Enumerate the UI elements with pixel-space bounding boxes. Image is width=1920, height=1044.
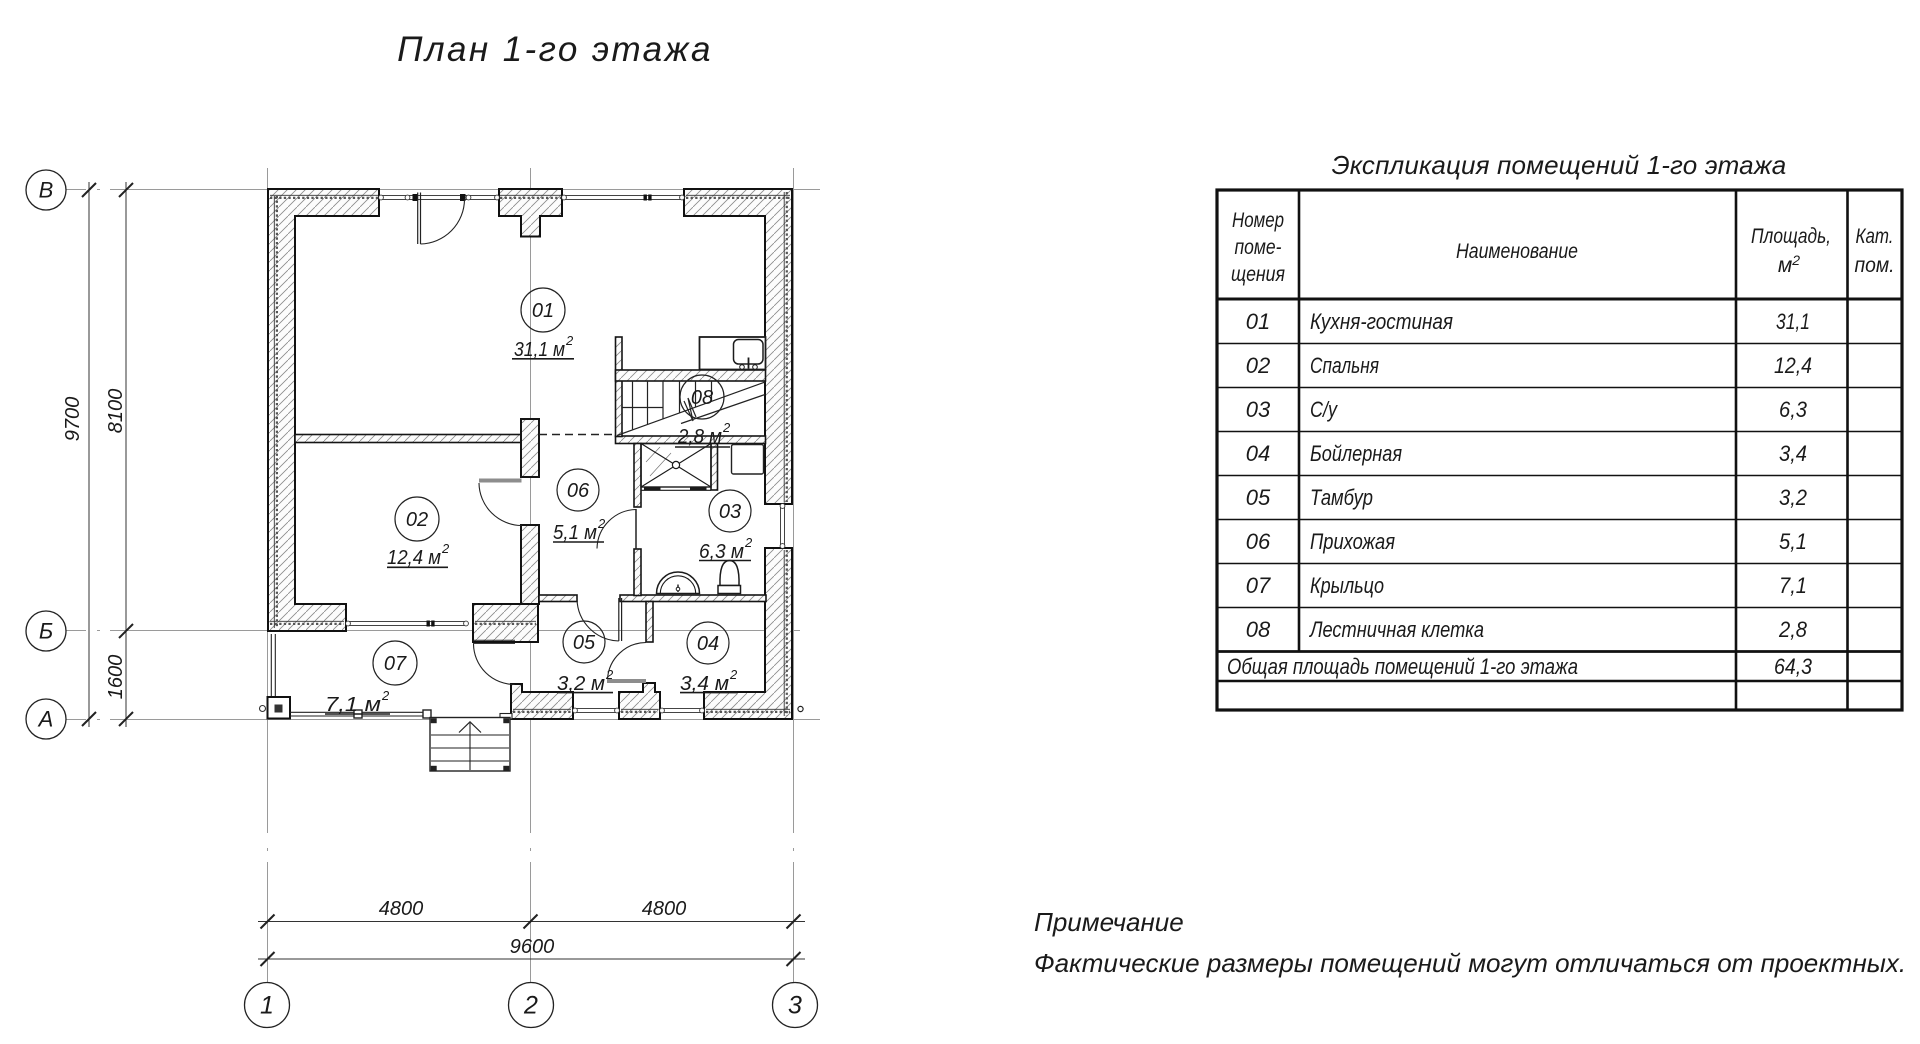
svg-text:2,8 м: 2,8 м <box>677 426 722 448</box>
svg-text:Номер: Номер <box>1232 209 1284 232</box>
svg-text:8100: 8100 <box>105 389 127 434</box>
svg-text:Площадь,: Площадь, <box>1751 225 1831 248</box>
svg-text:Примечание: Примечание <box>1034 907 1184 937</box>
svg-text:Спальня: Спальня <box>1310 353 1379 378</box>
svg-text:64,3: 64,3 <box>1774 654 1813 679</box>
svg-text:2: 2 <box>523 992 538 1020</box>
svg-text:07: 07 <box>384 653 407 675</box>
svg-text:2: 2 <box>605 667 614 682</box>
svg-text:План 1-го этажа: План 1-го этажа <box>397 30 713 69</box>
svg-text:5,1 м: 5,1 м <box>553 522 597 544</box>
svg-text:1600: 1600 <box>105 655 127 700</box>
svg-text:7,1 м: 7,1 м <box>325 694 381 716</box>
svg-text:поме-: поме- <box>1235 236 1282 259</box>
svg-text:06: 06 <box>567 480 590 502</box>
svg-text:5,1: 5,1 <box>1779 529 1807 554</box>
svg-text:2: 2 <box>565 333 574 348</box>
svg-text:Кухня-гостиная: Кухня-гостиная <box>1310 309 1453 334</box>
svg-text:12,4 м: 12,4 м <box>387 547 441 569</box>
svg-text:03: 03 <box>1246 397 1271 422</box>
svg-text:08: 08 <box>691 387 713 409</box>
svg-text:12,4: 12,4 <box>1774 353 1812 378</box>
svg-text:4800: 4800 <box>642 898 687 920</box>
svg-text:Лестничная клетка: Лестничная клетка <box>1308 617 1484 642</box>
svg-text:01: 01 <box>1246 309 1270 334</box>
svg-text:Прихожая: Прихожая <box>1310 529 1395 554</box>
svg-text:06: 06 <box>1246 529 1271 554</box>
svg-text:м2: м2 <box>1778 252 1800 277</box>
svg-text:щения: щения <box>1231 263 1285 286</box>
svg-text:Б: Б <box>39 619 53 644</box>
svg-text:31,1: 31,1 <box>1776 309 1810 334</box>
svg-text:Наименование: Наименование <box>1456 240 1578 263</box>
svg-text:2,8: 2,8 <box>1778 617 1808 642</box>
svg-text:9600: 9600 <box>510 936 555 958</box>
svg-text:02: 02 <box>406 509 428 531</box>
svg-text:04: 04 <box>697 633 719 655</box>
svg-text:2: 2 <box>729 667 738 682</box>
svg-text:01: 01 <box>532 300 554 322</box>
svg-text:3,2 м: 3,2 м <box>557 673 605 695</box>
svg-text:Экспликация помещений 1-го эта: Экспликация помещений 1-го этажа <box>1332 150 1787 180</box>
svg-text:4800: 4800 <box>379 898 424 920</box>
svg-text:В: В <box>39 178 54 203</box>
svg-text:3,2: 3,2 <box>1779 485 1807 510</box>
svg-text:07: 07 <box>1246 573 1271 598</box>
svg-text:05: 05 <box>1246 485 1271 510</box>
svg-text:Общая площадь помещений 1-го э: Общая площадь помещений 1-го этажа <box>1227 654 1578 679</box>
svg-text:Кат.: Кат. <box>1856 225 1894 248</box>
svg-text:31,1 м: 31,1 м <box>514 339 565 361</box>
svg-text:пом.: пом. <box>1855 254 1895 277</box>
svg-text:04: 04 <box>1246 441 1270 466</box>
svg-text:Крыльцо: Крыльцо <box>1310 573 1384 598</box>
svg-text:3,4: 3,4 <box>1779 441 1807 466</box>
svg-text:3: 3 <box>788 992 802 1020</box>
svg-text:02: 02 <box>1246 353 1270 378</box>
svg-text:08: 08 <box>1246 617 1271 642</box>
svg-text:С/у: С/у <box>1310 397 1339 422</box>
svg-text:9700: 9700 <box>62 397 84 442</box>
svg-text:А: А <box>37 707 54 732</box>
svg-text:3,4 м: 3,4 м <box>680 673 729 695</box>
svg-text:7,1: 7,1 <box>1779 573 1807 598</box>
svg-text:2: 2 <box>381 688 390 703</box>
svg-text:Тамбур: Тамбур <box>1310 485 1373 510</box>
svg-text:03: 03 <box>719 501 741 523</box>
svg-text:1: 1 <box>260 992 274 1020</box>
svg-text:6,3: 6,3 <box>1779 397 1808 422</box>
svg-text:05: 05 <box>573 632 596 654</box>
svg-text:Бойлерная: Бойлерная <box>1310 441 1402 466</box>
svg-text:2: 2 <box>597 516 606 531</box>
svg-text:2: 2 <box>441 541 450 556</box>
svg-text:2: 2 <box>744 535 753 550</box>
svg-text:Фактические размеры помещений: Фактические размеры помещений могут отли… <box>1034 948 1906 978</box>
svg-text:2: 2 <box>722 420 731 435</box>
